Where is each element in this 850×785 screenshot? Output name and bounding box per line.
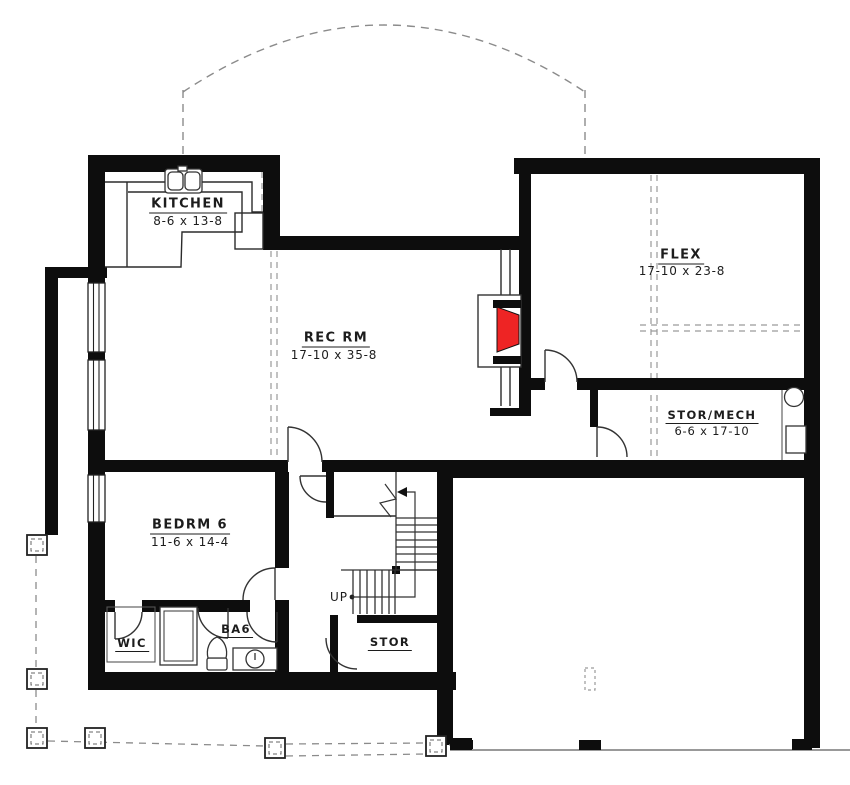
kitchen-sink [165, 166, 202, 193]
room-label-ba6: BA6 [219, 622, 253, 638]
post [265, 738, 285, 758]
stair-treads-upper [396, 518, 437, 570]
slab-post-stub [450, 738, 472, 750]
room-label-wic: WIC [115, 636, 149, 652]
room-dims-stor-mech: 6-6 x 17-10 [674, 424, 749, 438]
roofline-dashed-arc [183, 25, 585, 157]
wall-stormech-left [590, 390, 598, 427]
wall-chase-cap [490, 408, 531, 416]
wall-flex-left [519, 158, 531, 416]
door-flex [545, 350, 577, 382]
wall-porch-left [45, 267, 58, 535]
stair-direction-arrow [397, 487, 407, 497]
post [27, 669, 47, 689]
slab-edge [450, 738, 850, 750]
door-wic [115, 612, 142, 639]
shower [160, 607, 197, 665]
wall-stor-left [330, 615, 338, 672]
room-dims-rec-rm: 17-10 x 35-8 [291, 348, 377, 362]
wall-stairhall-top [322, 460, 437, 472]
room-dims-bedrm6: 11-6 x 14-4 [151, 535, 229, 549]
wall-kitchen-right [263, 155, 280, 250]
post [27, 535, 47, 555]
room-label-flex: FLEX [658, 248, 704, 265]
door-closet [300, 476, 326, 502]
room-dims-kitchen: 8-6 x 13-8 [153, 214, 223, 228]
windows [88, 283, 105, 522]
stairs-up-label: UP [330, 590, 348, 604]
kitchen-fridge [235, 213, 263, 249]
stairs [341, 472, 437, 614]
room-label-rec-rm: REC RM [302, 331, 370, 348]
fireplace-firebox [497, 307, 519, 352]
window-recrm-left-2 [88, 360, 105, 430]
wall-lowerroom-left [437, 460, 453, 745]
fireplace [478, 295, 521, 367]
room-dims-flex: 17-10 x 23-8 [639, 264, 725, 278]
wall-bath-top-a [103, 600, 115, 612]
door-hall-to-recrm [288, 427, 322, 462]
wall-bedroom-right [275, 472, 289, 568]
wall-bottom-exterior [88, 672, 456, 690]
stair-treads-lower [353, 570, 389, 614]
door-bedroom [243, 568, 275, 600]
wall-flex-bottom-b [577, 378, 820, 390]
room-label-stor-mech: STOR/MECH [666, 408, 759, 424]
post [426, 736, 446, 756]
bath-vanity [233, 648, 277, 670]
floor-plan-page: KITCHEN 8-6 x 13-8 FLEX 17-10 x 23-8 REC… [0, 0, 850, 785]
slab-post-stub [579, 740, 601, 750]
room-label-stor: STOR [368, 635, 412, 651]
window-bedroom-left [88, 475, 105, 522]
door-stormech [597, 427, 627, 457]
wall-stor-top [357, 615, 440, 623]
wall-flex-top [514, 158, 820, 174]
water-heater [785, 388, 804, 407]
wall-bedroom-top [88, 460, 288, 472]
post [85, 728, 105, 748]
room-label-bedrm6: BEDRM 6 [150, 518, 230, 535]
slab-post-stub [792, 739, 812, 750]
floor-plan-drawing [0, 0, 850, 785]
wall-lowerroom-top [437, 460, 820, 478]
wall-closet-left [326, 472, 334, 518]
wall-flex-bottom-a [519, 378, 545, 390]
stair-break-mark [380, 484, 396, 517]
toilet [207, 637, 227, 670]
post [27, 728, 47, 748]
window-recrm-left-1 [88, 283, 105, 352]
wall-recrm-top [263, 236, 530, 250]
room-label-kitchen: KITCHEN [149, 197, 227, 214]
furnace [786, 426, 806, 453]
